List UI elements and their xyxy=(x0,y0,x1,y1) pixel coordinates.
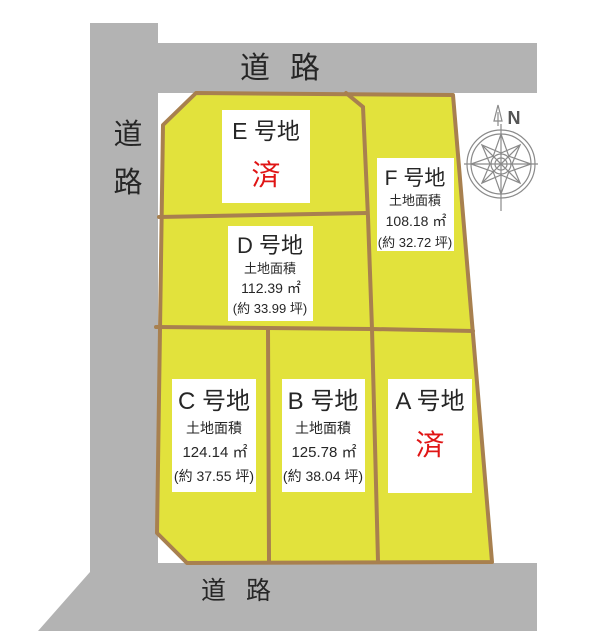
plot-D-name: D 号地 xyxy=(237,233,303,258)
plot-D-area-tsubo: (約 33.99 坪) xyxy=(233,301,307,316)
plot-B-area-sqm: 125.78 ㎡ xyxy=(291,444,356,461)
plot-label-E: E 号地 済 xyxy=(222,110,310,203)
lot-map-svg: 道路 道 路 道路 N E 号地 済 F 号地 土地面積 xyxy=(0,0,600,641)
plot-label-D: D 号地 土地面積 112.39 ㎡ (約 33.99 坪) xyxy=(228,226,313,321)
divider-d-cb xyxy=(156,327,372,329)
plot-B-area-tsubo: (約 38.04 坪) xyxy=(283,468,363,484)
road-label-top: 道路 xyxy=(240,52,340,85)
plot-F-area-tsubo: (約 32.72 坪) xyxy=(378,235,452,250)
plot-label-A: A 号地 済 xyxy=(388,379,472,493)
divider-c-b xyxy=(268,329,269,561)
plot-C-area-sqm: 124.14 ㎡ xyxy=(182,444,247,461)
plot-F-area-sqm: 108.18 ㎡ xyxy=(386,213,447,229)
plot-D-area-label: 土地面積 xyxy=(244,261,296,276)
plot-A-name: A 号地 xyxy=(395,388,464,415)
plot-F-name: F 号地 xyxy=(385,167,446,190)
plot-E-status: 済 xyxy=(251,159,280,192)
plot-C-area-tsubo: (約 37.55 坪) xyxy=(174,468,254,484)
plot-D-area-sqm: 112.39 ㎡ xyxy=(241,280,301,296)
plot-B-name: B 号地 xyxy=(288,388,359,415)
road-left xyxy=(38,23,158,631)
road-label-left-char2: 路 xyxy=(113,166,142,199)
plot-B-area-label: 土地面積 xyxy=(295,420,351,436)
plot-label-B: B 号地 土地面積 125.78 ㎡ (約 38.04 坪) xyxy=(282,379,365,492)
divider-f-a xyxy=(372,329,473,331)
lot-map: 道路 道 路 道路 N E 号地 済 F 号地 土地面積 xyxy=(0,0,600,641)
plot-label-C: C 号地 土地面積 124.14 ㎡ (約 37.55 坪) xyxy=(172,379,256,492)
north-label: N xyxy=(508,108,521,128)
plot-A-status: 済 xyxy=(415,429,444,462)
plot-E-name: E 号地 xyxy=(232,118,300,144)
plot-C-area-label: 土地面積 xyxy=(186,420,242,436)
road-label-bottom: 道路 xyxy=(201,577,291,605)
plot-label-F: F 号地 土地面積 108.18 ㎡ (約 32.72 坪) xyxy=(377,158,454,251)
compass-rose: N xyxy=(464,105,538,211)
plot-C-name: C 号地 xyxy=(178,388,250,415)
road-top xyxy=(158,43,537,93)
road-label-left-char1: 道 xyxy=(113,118,142,151)
plot-F-area-label: 土地面積 xyxy=(389,193,441,208)
